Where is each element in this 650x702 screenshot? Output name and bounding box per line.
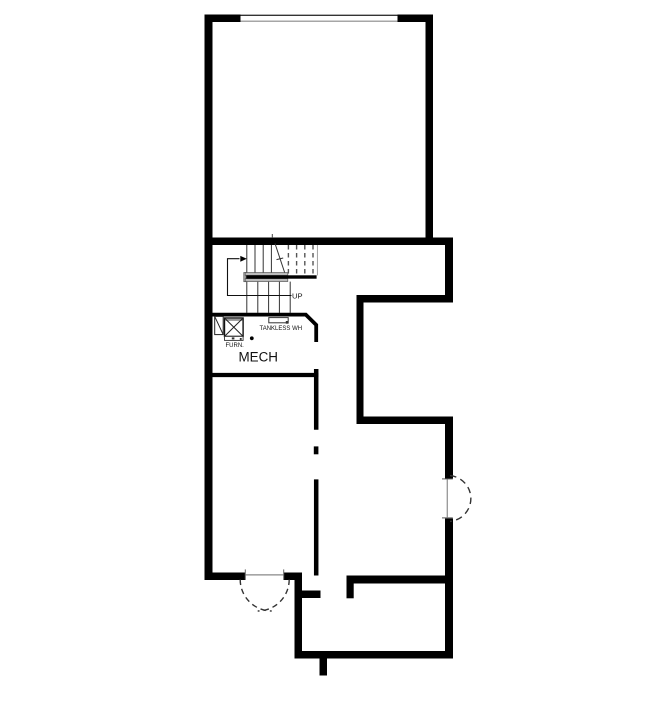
svg-text:TANKLESS WH: TANKLESS WH [260, 326, 303, 332]
svg-text:UP: UP [292, 292, 303, 301]
svg-text:MECH: MECH [239, 350, 278, 365]
svg-text:FURN.: FURN. [226, 343, 245, 349]
